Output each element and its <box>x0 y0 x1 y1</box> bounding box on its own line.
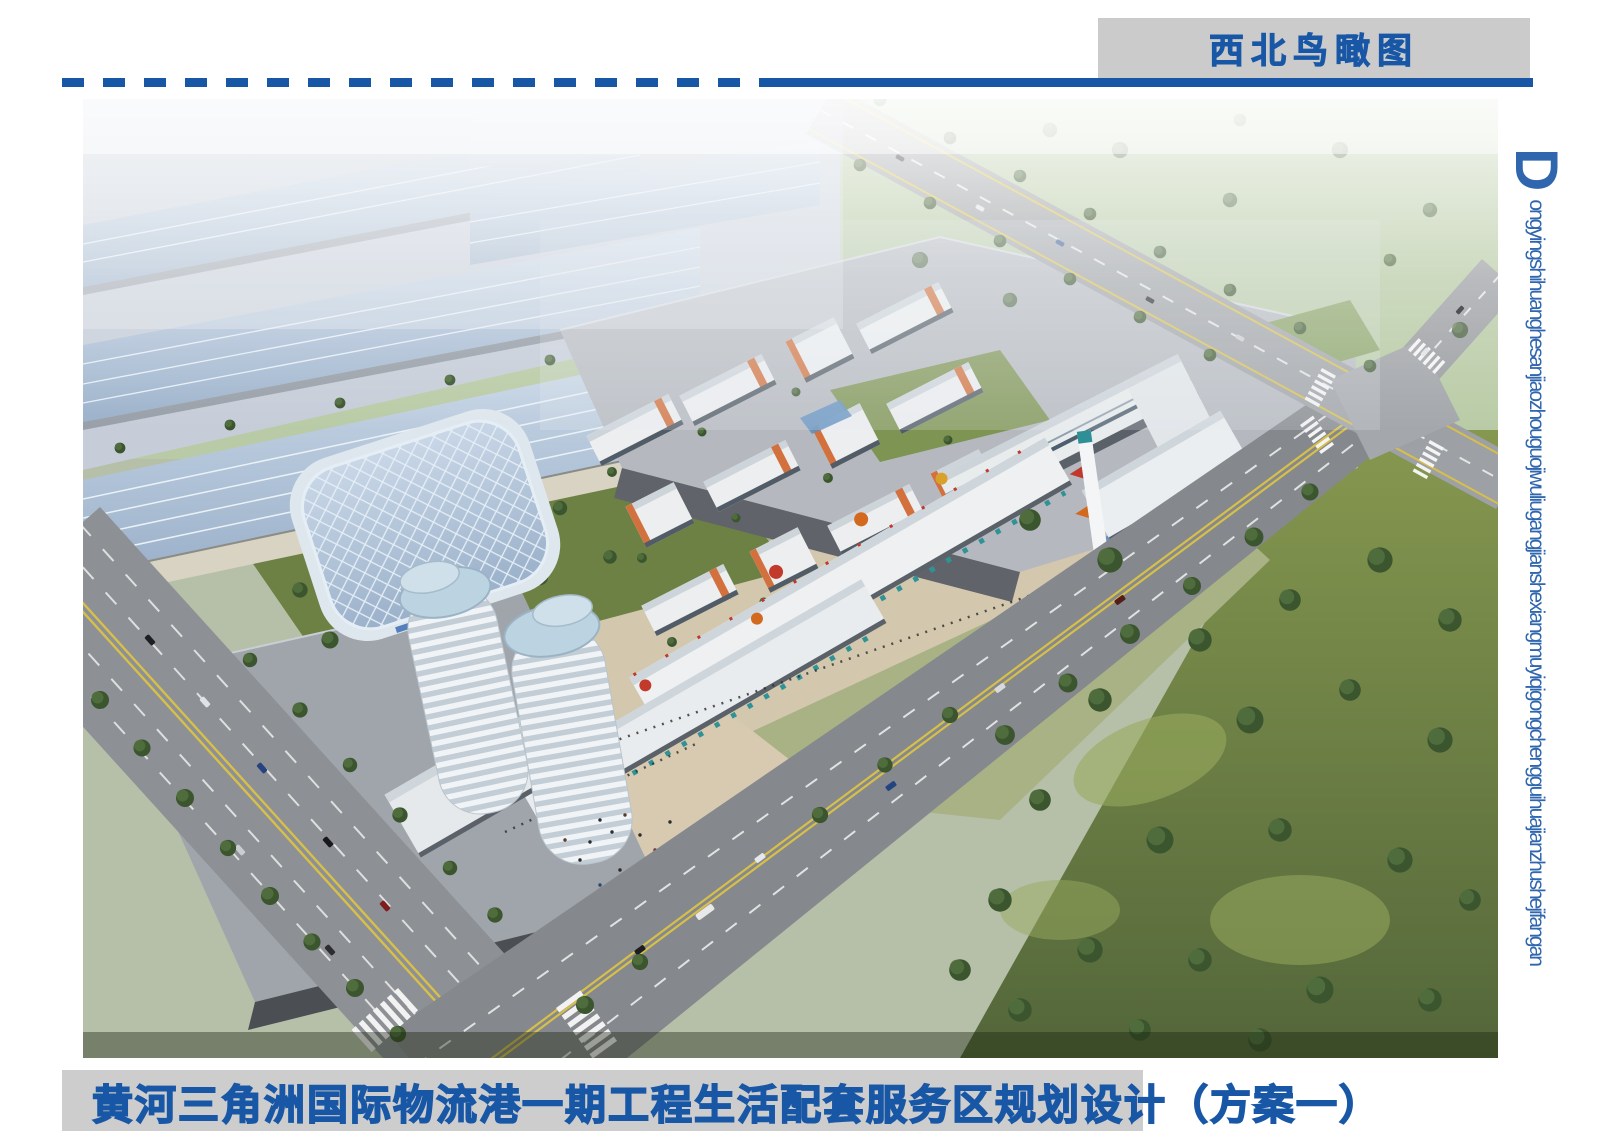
side-caption: Dongyingshihuanghesanjiaozhouguojiwuliug… <box>1499 148 1571 1068</box>
presentation-page: 西北鸟瞰图 <box>0 0 1600 1131</box>
project-title: 黄河三角洲国际物流港一期工程生活配套服务区规划设计（方案一） <box>92 1071 1382 1131</box>
project-title-bar: 黄河三角洲国际物流港一期工程生活配套服务区规划设计（方案一） <box>62 1070 1143 1131</box>
aerial-rendering-canvas <box>83 99 1498 1058</box>
divider-solid-line <box>772 78 1533 87</box>
view-title-bar: 西北鸟瞰图 <box>1098 18 1530 78</box>
side-caption-pinyin: ongyingshihuanghesanjiaozhouguojiwuliuga… <box>1525 199 1548 965</box>
aerial-rendering <box>83 99 1498 1058</box>
view-title: 西北鸟瞰图 <box>1209 23 1419 74</box>
side-caption-initial: D <box>1503 148 1570 199</box>
bottom-shadow-strip <box>83 1032 1498 1058</box>
haze-top-strip <box>83 99 1498 154</box>
divider-dashed-line <box>62 78 772 87</box>
haze-center <box>540 220 1380 430</box>
